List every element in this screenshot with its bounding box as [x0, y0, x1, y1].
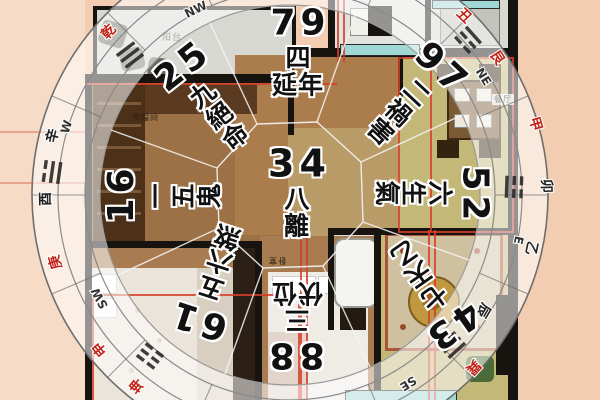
star-char: 生	[400, 180, 426, 205]
star-numeral: 三	[285, 306, 310, 334]
star-numeral: 一	[143, 184, 171, 209]
star-char: 鬼	[196, 184, 222, 209]
star-group-center: 34 八 離	[262, 145, 332, 240]
star-char: 煞	[211, 221, 243, 253]
star-digits: 88	[264, 336, 329, 372]
star-group-w: 16 一 五 鬼	[104, 171, 223, 221]
star-numeral: 六	[426, 180, 454, 205]
star-digits: 52	[456, 160, 492, 225]
star-digits: 34	[263, 145, 331, 183]
star-char: 氣	[374, 180, 400, 205]
ring-char-mao: 卯	[538, 179, 554, 194]
star-digits: 16	[104, 163, 140, 228]
star-name: 伏位	[271, 280, 323, 306]
star-group-e: 52 六 生 氣	[374, 168, 493, 218]
star-name: 離	[284, 213, 310, 239]
star-digits: 79	[265, 6, 330, 42]
star-numeral: 八	[284, 186, 309, 214]
star-group-n: 79 四 延年	[258, 6, 338, 99]
star-name: 延年	[272, 72, 324, 98]
feng-shui-floorplan: 阳台 衣帽间 餐厅 卧室	[0, 0, 600, 400]
star-char: 五	[170, 184, 196, 209]
star-numeral: 四	[285, 45, 310, 73]
ring-char-you: 酉	[38, 192, 54, 206]
star-group-s: 88 三 伏位	[257, 280, 337, 373]
